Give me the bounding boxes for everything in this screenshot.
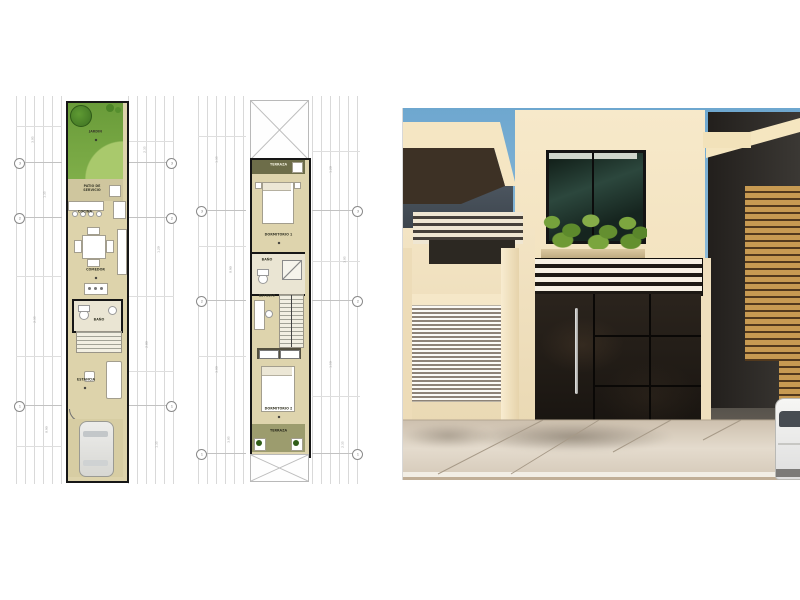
terrace-bottom: TERRAZA	[252, 424, 305, 452]
pillow	[262, 367, 292, 376]
void-over-garage	[250, 454, 309, 482]
dimension-value: 1.20	[157, 246, 161, 253]
void-over-garden	[250, 100, 309, 160]
upper-floor-plan: TERRAZA DORMITORIO 1 BAÑO ESTUDIO	[250, 158, 311, 458]
toilet-tank	[78, 305, 90, 312]
car-bumper-shadow	[776, 469, 800, 477]
upper-bathroom: BAÑO	[252, 252, 305, 296]
fridge-icon	[113, 201, 126, 219]
stairs-icon	[279, 294, 304, 348]
tree-icon	[70, 105, 92, 127]
room-label-bano: BAÑO	[91, 318, 108, 322]
garden-path	[81, 131, 123, 179]
terrace-top: TERRAZA	[252, 160, 305, 174]
grid-bubble: 2	[14, 213, 25, 224]
kitchen-sink-counter	[117, 229, 127, 275]
garage	[68, 419, 123, 477]
facade-render	[402, 108, 800, 480]
dimension-value: 1.20	[329, 166, 333, 173]
dining-table-icon	[82, 235, 106, 259]
dimension-value: 1.35	[215, 156, 219, 163]
plant-icon	[291, 438, 303, 451]
dimension-value: 1.35	[155, 441, 159, 448]
stove-icon	[84, 283, 108, 295]
nightstand-icon	[255, 182, 262, 189]
dimension-lines-right-plan2: 1.20 3.05 1.50 2.35	[312, 96, 360, 484]
grid-bubble: 1	[352, 449, 363, 460]
desk-chair-icon	[265, 310, 273, 318]
dimension-value: 1.35	[43, 191, 47, 198]
dimension-value: 2.35	[143, 146, 147, 153]
bathroom: BAÑO	[72, 299, 123, 333]
room-label-bano2: BAÑO	[260, 258, 274, 262]
dimension-value: 2.35	[33, 316, 37, 323]
washer-icon	[109, 185, 121, 197]
grid-bubble: 1	[166, 401, 177, 412]
shrub-icon	[115, 107, 121, 113]
grid-bubble: 2	[352, 296, 363, 307]
dimension-value: 0.90	[229, 266, 233, 273]
stairs-icon	[76, 331, 122, 353]
room-label-terraza2: TERRAZA	[264, 429, 293, 433]
desk-icon	[254, 300, 265, 330]
room-label-cocina: COCINA	[76, 210, 95, 214]
closet	[257, 348, 301, 359]
plant-icon	[254, 438, 266, 451]
service-patio: PATIO DE SERVICIO	[68, 179, 123, 201]
room-label-estudio: ESTUDIO	[259, 294, 276, 298]
grid-bubble: 2	[166, 213, 177, 224]
grid-bubble: 1	[14, 401, 25, 412]
planter-icon	[292, 162, 303, 173]
dimension-value: 3.05	[31, 136, 35, 143]
grid-bubble: 2	[196, 296, 207, 307]
nightstand-icon	[294, 182, 301, 189]
rear-window	[83, 460, 108, 466]
sink-icon	[108, 306, 117, 315]
dimension-lines-left-plan2: 1.35 0.90 3.00 3.05	[198, 96, 246, 484]
grid-bubble: 3	[352, 206, 363, 217]
room-label-dormitorio2: DORMITORIO 2	[264, 407, 293, 411]
dimension-value: 3.05	[227, 436, 231, 443]
grid-bubble: 3	[196, 206, 207, 217]
windshield	[83, 431, 108, 437]
architectural-sheet: 3.05 1.35 2.35 0.90 2.35 1.20 2.80 1.35 …	[0, 0, 800, 600]
room-label-jardin: JARDIN	[80, 130, 110, 134]
ground-floor-plan: JARDIN PATIO DE SERVICIO COCINA COMEDOR	[66, 101, 129, 483]
grid-bubble: 3	[14, 158, 25, 169]
bed-icon	[261, 366, 295, 412]
bed-icon	[262, 182, 294, 224]
chair-icon	[87, 227, 100, 235]
render-details	[403, 108, 800, 480]
room-label-terraza: TERRAZA	[264, 163, 293, 167]
grid-bubble: 1	[196, 449, 207, 460]
pillow	[263, 183, 291, 191]
living-room: ESTANCIA	[68, 351, 123, 407]
room-label-estancia: ESTANCIA	[76, 378, 96, 382]
room-label-dormitorio1: DORMITORIO 1	[264, 233, 293, 237]
dimension-value: 3.00	[215, 366, 219, 373]
dimension-lines-right-plan1: 2.35 1.20 2.80 1.35	[128, 96, 174, 484]
room-label-comedor: COMEDOR	[80, 268, 110, 272]
dimension-lines-left-plan1: 3.05 1.35 2.35 0.90	[16, 96, 62, 484]
grid-bubble: 3	[166, 158, 177, 169]
garden-area: JARDIN	[68, 103, 123, 179]
sofa-icon	[106, 361, 122, 399]
shower-icon	[282, 260, 302, 280]
dimension-value: 0.90	[45, 426, 49, 433]
toilet-tank	[257, 269, 269, 276]
chair-icon	[74, 240, 82, 253]
dimension-value: 2.80	[145, 341, 149, 348]
room-label-patio: PATIO DE SERVICIO	[82, 185, 102, 192]
stool-icon	[96, 211, 102, 217]
dimension-value: 2.35	[341, 441, 345, 448]
chair-icon	[87, 259, 100, 267]
car-rear-window	[779, 411, 800, 427]
dimension-value: 3.05	[343, 256, 347, 263]
shrub-icon	[106, 104, 114, 112]
car-icon	[79, 421, 114, 477]
parked-car	[775, 398, 800, 480]
dimension-value: 1.50	[329, 361, 333, 368]
chair-icon	[106, 240, 114, 253]
